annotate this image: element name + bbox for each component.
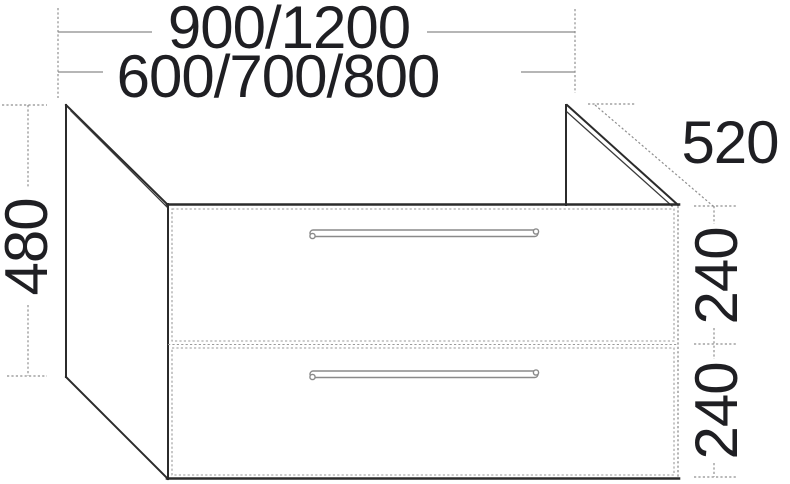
left-side-panel bbox=[66, 105, 168, 479]
handle-end-right bbox=[533, 370, 538, 375]
lower-drawer-handle bbox=[310, 370, 539, 380]
cabinet-drawing bbox=[66, 105, 679, 479]
upper-drawer-height-label: 240 bbox=[683, 227, 750, 324]
dim-height: 480 bbox=[0, 105, 60, 376]
right-panel-top-edge bbox=[567, 105, 678, 205]
upper-drawer-handle bbox=[310, 229, 539, 239]
dim-width: 900/1200 600/700/800 bbox=[58, 0, 575, 110]
left-panel-top-edge bbox=[66, 105, 168, 205]
lower-drawer-front bbox=[172, 348, 674, 475]
vanity-dimension-drawing: 900/1200 600/700/800 480 520 240 240 bbox=[0, 0, 790, 484]
lower-drawer-height-label: 240 bbox=[683, 362, 750, 459]
upper-drawer-front bbox=[172, 209, 674, 341]
front-face bbox=[167, 204, 679, 479]
right-side-panel bbox=[566, 105, 678, 206]
left-panel-bottom-edge bbox=[66, 377, 168, 479]
depth-label: 520 bbox=[681, 109, 778, 176]
handle-end-right bbox=[533, 229, 538, 234]
left-panel-top-edge-thickness bbox=[71, 111, 167, 207]
handle-bar bbox=[310, 371, 538, 378]
height-label: 480 bbox=[0, 198, 60, 295]
technical-drawing-canvas: 900/1200 600/700/800 480 520 240 240 bbox=[0, 0, 790, 484]
dim-depth: 520 bbox=[588, 104, 779, 206]
handle-end-left bbox=[310, 374, 315, 379]
dim-drawer-heights: 240 240 bbox=[683, 206, 750, 477]
handle-end-left bbox=[310, 233, 315, 238]
handle-bar bbox=[310, 230, 538, 237]
width-label-bottom: 600/700/800 bbox=[117, 43, 440, 110]
